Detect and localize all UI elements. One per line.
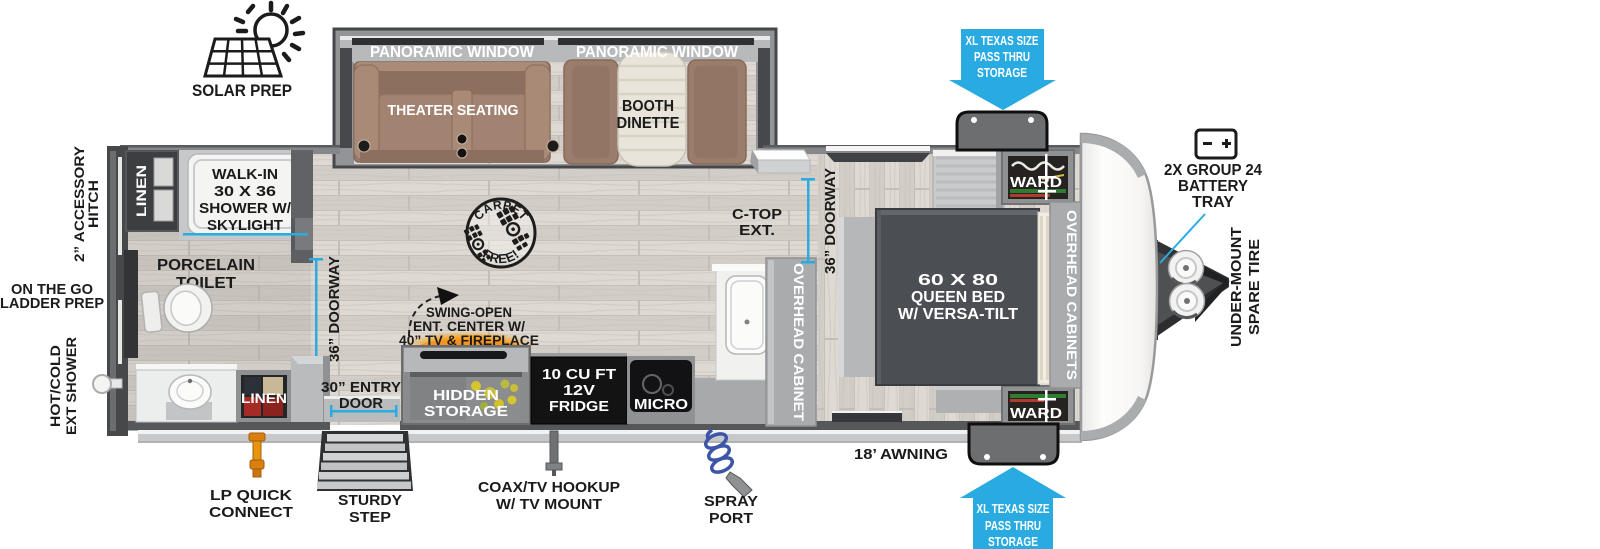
svg-text:WARD: WARD bbox=[1010, 405, 1062, 422]
svg-text:DOOR: DOOR bbox=[339, 396, 384, 412]
svg-text:PORCELAIN: PORCELAIN bbox=[157, 257, 255, 274]
svg-text:STORAGE: STORAGE bbox=[977, 66, 1027, 80]
svg-text:30” ENTRY: 30” ENTRY bbox=[321, 380, 401, 396]
svg-text:18’ AWNING: 18’ AWNING bbox=[854, 446, 948, 463]
svg-text:OVERHEAD CABINET: OVERHEAD CABINET bbox=[791, 263, 807, 421]
svg-text:LINEN: LINEN bbox=[241, 391, 287, 406]
svg-text:PORT: PORT bbox=[709, 510, 753, 527]
svg-text:HIDDEN: HIDDEN bbox=[433, 388, 499, 404]
svg-text:HOT/COLD: HOT/COLD bbox=[47, 345, 63, 427]
svg-text:SOLAR PREP: SOLAR PREP bbox=[192, 82, 292, 100]
svg-text:LP QUICK: LP QUICK bbox=[210, 487, 292, 504]
svg-text:FRIDGE: FRIDGE bbox=[549, 399, 609, 415]
svg-text:PANORAMIC WINDOW: PANORAMIC WINDOW bbox=[576, 44, 738, 61]
svg-text:PASS THRU: PASS THRU bbox=[974, 50, 1030, 64]
svg-text:THEATER SEATING: THEATER SEATING bbox=[388, 102, 519, 119]
svg-text:SHOWER W/: SHOWER W/ bbox=[199, 200, 292, 217]
svg-text:12V: 12V bbox=[563, 383, 595, 399]
svg-text:CONNECT: CONNECT bbox=[209, 504, 293, 521]
svg-text:W/ TV MOUNT: W/ TV MOUNT bbox=[496, 496, 602, 513]
svg-text:SWING-OPEN: SWING-OPEN bbox=[426, 305, 512, 320]
svg-text:30 X 36: 30 X 36 bbox=[214, 183, 276, 200]
svg-text:MICRO: MICRO bbox=[634, 397, 688, 413]
svg-text:OVERHEAD CABINETS: OVERHEAD CABINETS bbox=[1064, 210, 1080, 380]
svg-text:40” TV & FIREPLACE: 40” TV & FIREPLACE bbox=[399, 333, 539, 348]
svg-text:36” DOORWAY: 36” DOORWAY bbox=[823, 168, 839, 274]
svg-text:XL TEXAS SIZE: XL TEXAS SIZE bbox=[966, 34, 1039, 48]
svg-text:LINEN: LINEN bbox=[134, 165, 149, 217]
svg-text:EXT.: EXT. bbox=[739, 223, 775, 239]
svg-text:STURDY: STURDY bbox=[338, 492, 402, 509]
svg-text:PANORAMIC WINDOW: PANORAMIC WINDOW bbox=[370, 44, 534, 61]
svg-text:STORAGE: STORAGE bbox=[988, 535, 1038, 549]
svg-text:W/ VERSA-TILT: W/ VERSA-TILT bbox=[898, 306, 1019, 323]
svg-text:STEP: STEP bbox=[349, 509, 391, 526]
svg-text:TRAY: TRAY bbox=[1192, 194, 1235, 211]
svg-text:STORAGE: STORAGE bbox=[424, 404, 508, 420]
svg-text:UNDER-MOUNT: UNDER-MOUNT bbox=[1228, 227, 1245, 347]
svg-text:DINETTE: DINETTE bbox=[617, 115, 680, 132]
svg-text:36” DOORWAY: 36” DOORWAY bbox=[327, 256, 343, 362]
svg-text:QUEEN BED: QUEEN BED bbox=[911, 289, 1005, 306]
svg-text:BATTERY: BATTERY bbox=[1178, 178, 1249, 195]
svg-text:60 X 80: 60 X 80 bbox=[918, 272, 998, 289]
svg-text:WALK-IN: WALK-IN bbox=[212, 166, 278, 183]
svg-text:PASS THRU: PASS THRU bbox=[985, 519, 1041, 533]
svg-text:ENT. CENTER W/: ENT. CENTER W/ bbox=[413, 319, 525, 334]
svg-text:10 CU FT: 10 CU FT bbox=[542, 367, 616, 383]
svg-text:XL TEXAS SIZE: XL TEXAS SIZE bbox=[977, 502, 1050, 516]
svg-text:COAX/TV HOOKUP: COAX/TV HOOKUP bbox=[478, 479, 620, 496]
svg-text:SKYLIGHT: SKYLIGHT bbox=[207, 217, 283, 234]
svg-text:C-TOP: C-TOP bbox=[732, 207, 782, 223]
svg-text:2X GROUP 24: 2X GROUP 24 bbox=[1164, 162, 1262, 179]
svg-text:2” ACCESSORY: 2” ACCESSORY bbox=[72, 146, 87, 262]
svg-text:EXT SHOWER: EXT SHOWER bbox=[63, 337, 79, 435]
svg-text:LADDER PREP: LADDER PREP bbox=[0, 295, 104, 312]
svg-text:BOOTH: BOOTH bbox=[622, 98, 674, 115]
svg-text:SPARE TIRE: SPARE TIRE bbox=[1246, 239, 1263, 335]
svg-text:HITCH: HITCH bbox=[86, 180, 101, 228]
svg-text:SPRAY: SPRAY bbox=[704, 493, 758, 510]
